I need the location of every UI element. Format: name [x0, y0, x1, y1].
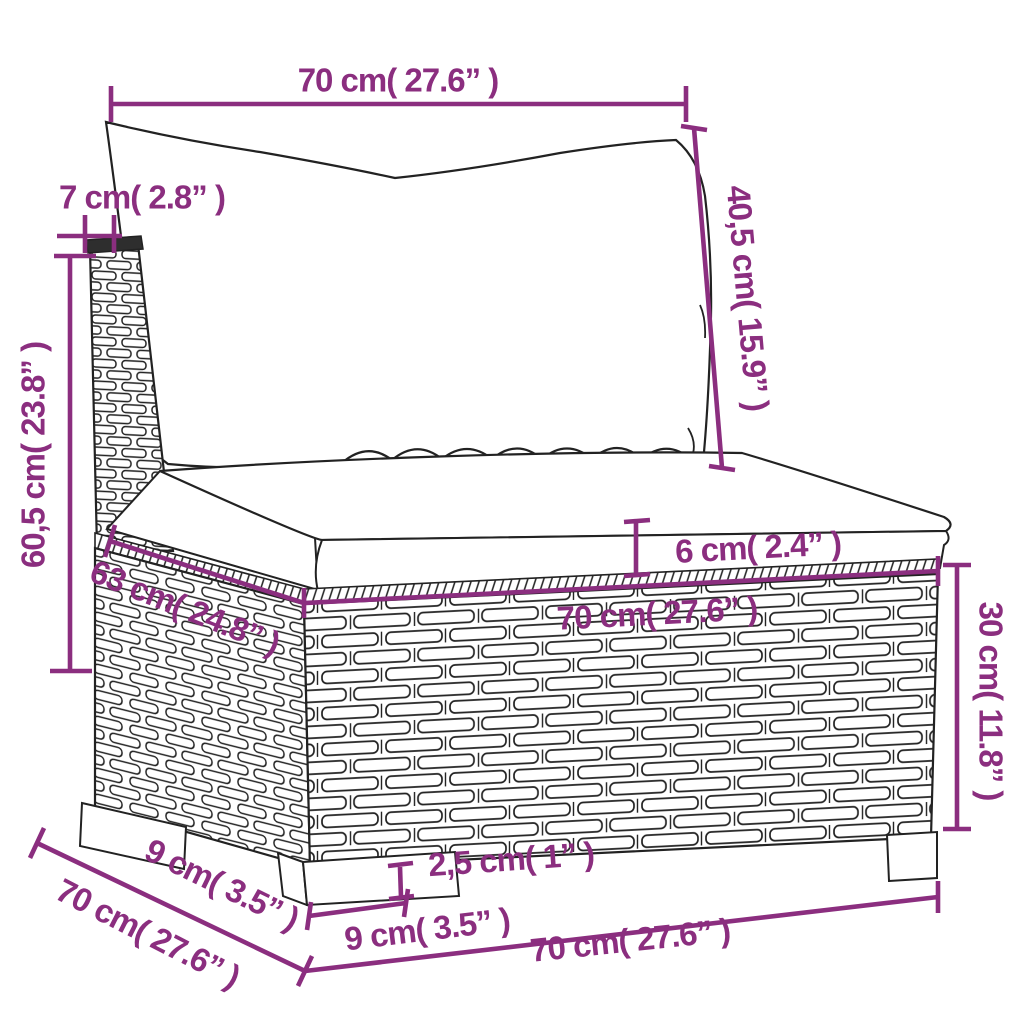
dim-label-post-width: 7 cm( 2.8” ) — [59, 181, 225, 214]
dim-label-top-width: 70 cm( 27.6” ) — [298, 64, 499, 97]
dimension-diagram: 70 cm( 27.6” ) 7 cm( 2.8” ) 40,5 cm( 15.… — [0, 0, 1024, 1024]
dim-label-cushion-thickness: 6 cm( 2.4” ) — [674, 526, 841, 568]
dim-label-total-height: 60,5 cm( 23.8” ) — [17, 342, 50, 568]
dim-line-base-height — [943, 565, 971, 829]
leg-right — [887, 832, 937, 881]
dim-line-total-height — [50, 256, 96, 671]
back-cushion — [106, 122, 711, 468]
dim-label-base-height: 30 cm( 11.8” ) — [975, 602, 1008, 801]
